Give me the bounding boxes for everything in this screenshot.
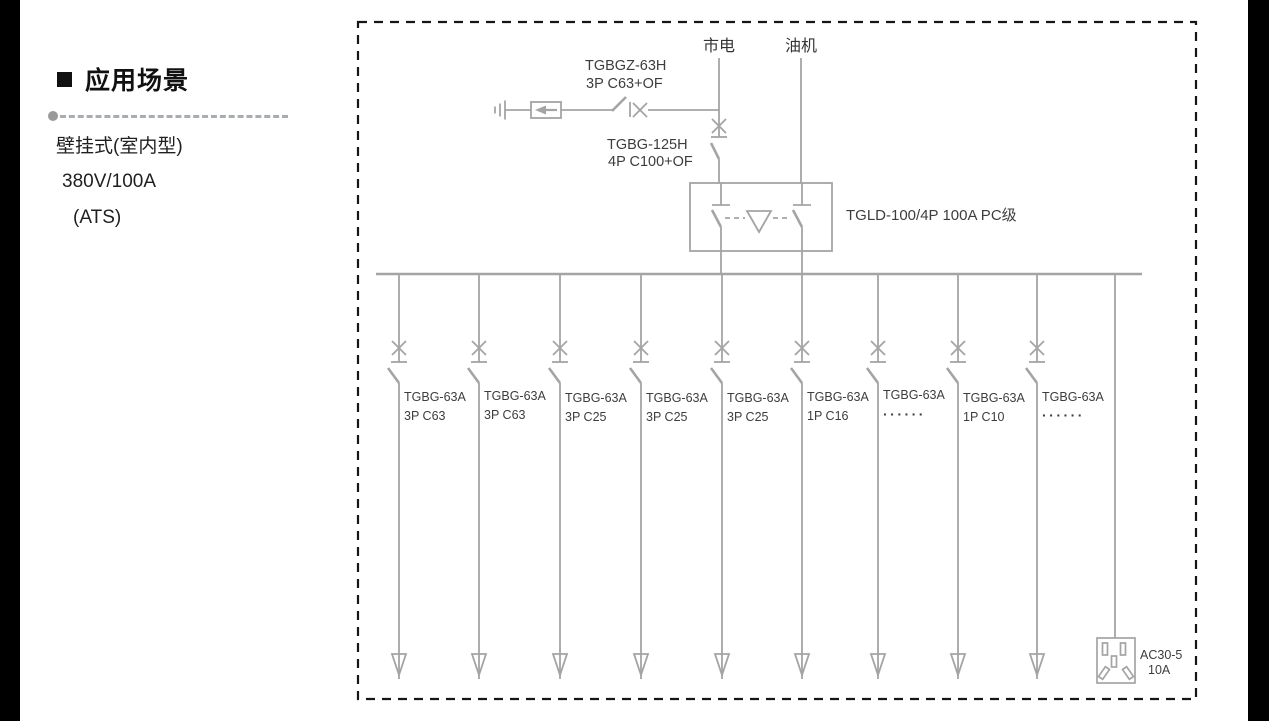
main-breaker-spec: 4P C100+OF	[608, 154, 693, 170]
spd-breaker-model: TGBGZ-63H	[585, 58, 666, 74]
branch-1-spec: 3P C63	[404, 409, 446, 423]
branch-line-2	[468, 275, 487, 679]
ats-transfer-mechanism-icon	[725, 211, 791, 232]
branch-line-5	[711, 275, 730, 679]
branch-4-spec: 3P C25	[646, 410, 688, 424]
slide-canvas: 应用场景 壁挂式(室内型) 380V/100A (ATS) 市电 油机	[0, 0, 1269, 721]
spd-breaker-spec: 3P C63+OF	[586, 76, 663, 92]
branch-line-8	[947, 275, 966, 679]
ats-mains-contact	[712, 183, 730, 274]
ats-one-line-diagram: 市电 油机	[0, 0, 1269, 721]
panel-dashed-border	[358, 22, 1196, 699]
earth-ground-icon	[495, 101, 505, 120]
ats-label: TGLD-100/4P 100A PC级	[846, 207, 1017, 224]
branch-2-model: TGBG-63A	[484, 389, 546, 403]
main-breaker-model: TGBG-125H	[607, 137, 688, 153]
branch-5-model: TGBG-63A	[727, 391, 789, 405]
main-breaker-symbol	[711, 119, 727, 159]
branch-6-model: TGBG-63A	[807, 390, 869, 404]
mains-source-label: 市电	[703, 37, 735, 55]
branch-2-spec: 3P C63	[484, 408, 526, 422]
branch-7-spec: ······	[883, 406, 926, 422]
socket-rating: 10A	[1148, 663, 1171, 677]
branch-line-6	[791, 275, 810, 679]
branch-9-spec: ······	[1042, 407, 1085, 423]
generator-source-label: 油机	[785, 37, 817, 55]
branch-4-model: TGBG-63A	[646, 391, 708, 405]
branch-6-spec: 1P C16	[807, 409, 849, 423]
branch-line-1	[388, 275, 407, 679]
branch-line-9	[1026, 275, 1045, 679]
branch-3-model: TGBG-63A	[565, 391, 627, 405]
ats-generator-contact	[793, 183, 811, 274]
spd-breaker-symbol	[612, 97, 647, 117]
branch-8-model: TGBG-63A	[963, 391, 1025, 405]
spd-arrow-icon	[535, 106, 557, 115]
mains-incoming-line	[711, 58, 727, 183]
socket-model: AC30-5	[1140, 648, 1182, 662]
branch-5-spec: 3P C25	[727, 410, 769, 424]
branch-line-3	[549, 275, 568, 679]
branch-7-model: TGBG-63A	[883, 388, 945, 402]
branch-8-spec: 1P C10	[963, 410, 1005, 424]
branch-3-spec: 3P C25	[565, 410, 607, 424]
spd-branch	[495, 97, 719, 120]
branch-1-model: TGBG-63A	[404, 390, 466, 404]
branch-line-7	[867, 275, 886, 679]
ats-box	[690, 183, 832, 274]
socket-icon	[1097, 638, 1135, 683]
branch-line-4	[630, 275, 649, 679]
branch-9-model: TGBG-63A	[1042, 390, 1104, 404]
